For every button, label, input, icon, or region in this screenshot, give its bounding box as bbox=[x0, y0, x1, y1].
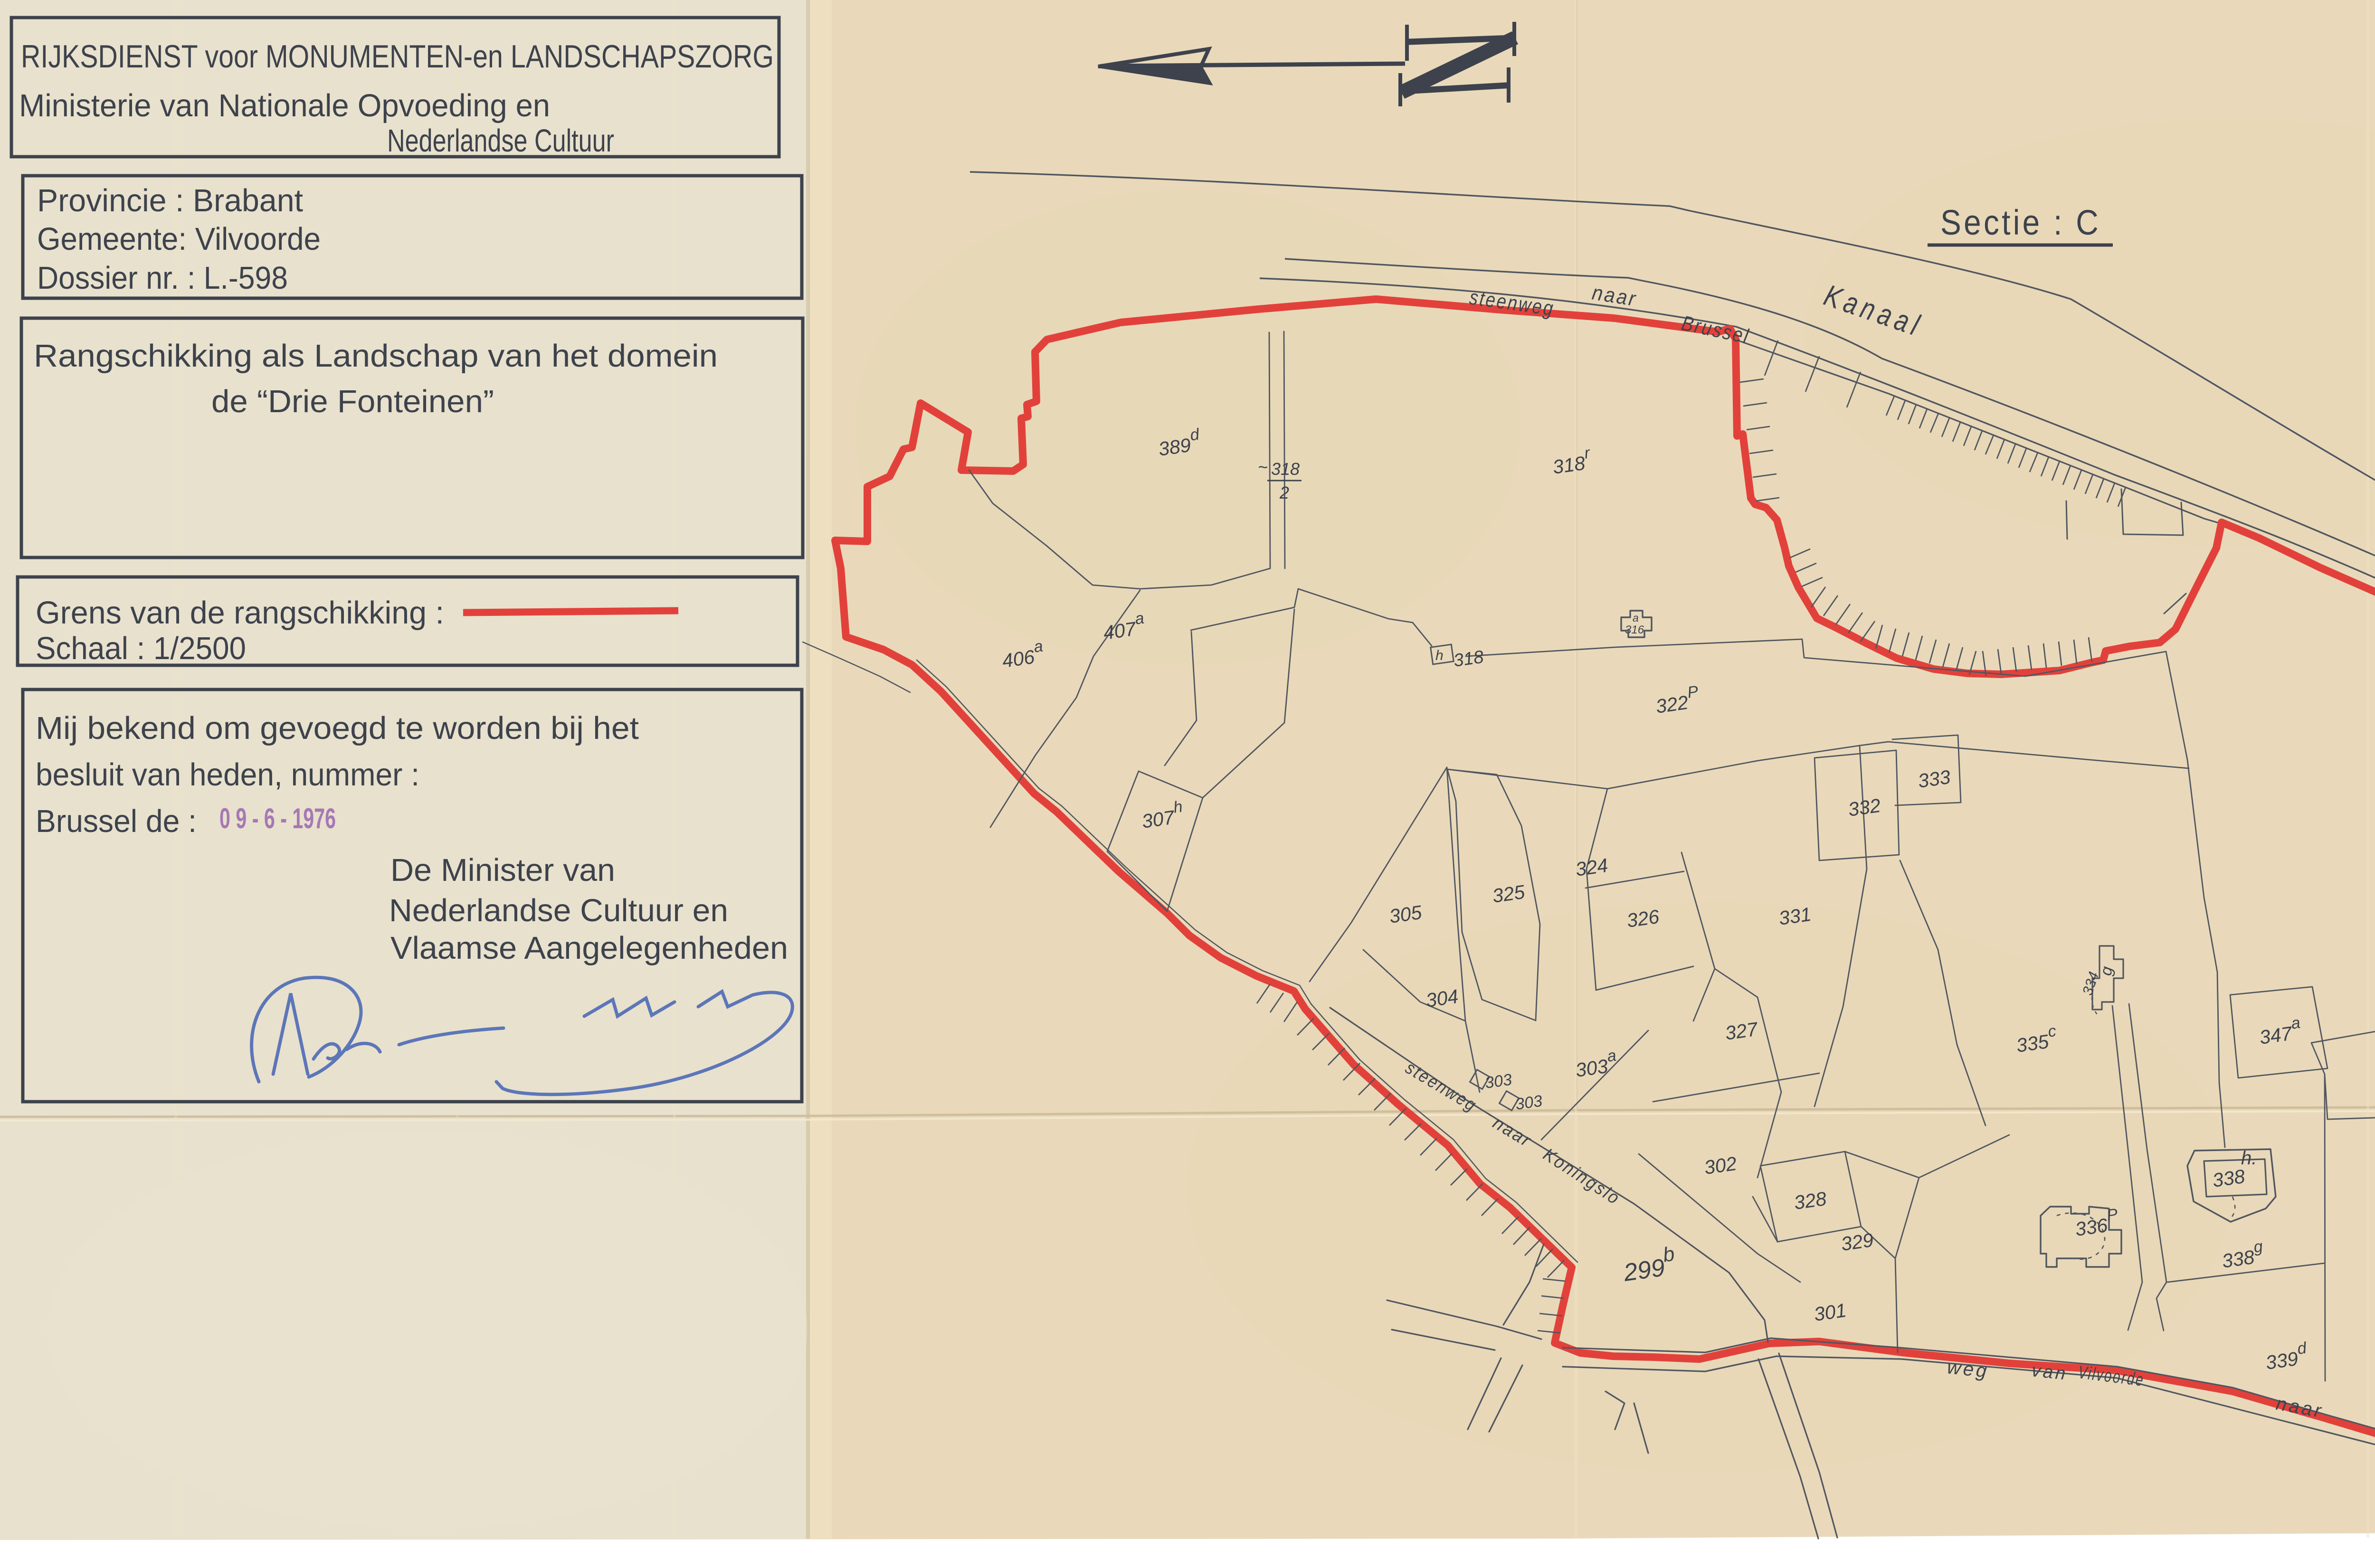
svg-text:Brussel de :: Brussel de : bbox=[36, 803, 197, 839]
svg-text:305: 305 bbox=[1388, 901, 1423, 927]
svg-text:328: 328 bbox=[1793, 1188, 1828, 1214]
svg-text:Sectie : C: Sectie : C bbox=[1940, 203, 2101, 242]
svg-text:339: 339 bbox=[2264, 1348, 2299, 1374]
svg-text:335: 335 bbox=[2015, 1030, 2050, 1057]
svg-text:318: 318 bbox=[1271, 459, 1300, 479]
svg-text:332: 332 bbox=[1847, 794, 1882, 821]
svg-text:318: 318 bbox=[1551, 452, 1586, 478]
svg-text:303: 303 bbox=[1484, 1070, 1513, 1092]
svg-text:301: 301 bbox=[1813, 1299, 1848, 1325]
svg-text:347: 347 bbox=[2258, 1022, 2294, 1048]
svg-text:van: van bbox=[2031, 1360, 2069, 1384]
svg-text:de “Drie Fonteinen”: de “Drie Fonteinen” bbox=[211, 384, 494, 419]
svg-text:Nederlandse Cultuur en: Nederlandse Cultuur en bbox=[389, 893, 728, 928]
svg-text:316: 316 bbox=[1625, 623, 1644, 636]
svg-text:329: 329 bbox=[1840, 1229, 1875, 1255]
svg-text:0 9 - 6 - 1976: 0 9 - 6 - 1976 bbox=[219, 803, 336, 834]
svg-text:322: 322 bbox=[1654, 691, 1690, 718]
svg-text:331: 331 bbox=[1777, 903, 1813, 929]
svg-text:303: 303 bbox=[1514, 1092, 1544, 1114]
svg-text:336: 336 bbox=[2074, 1214, 2109, 1240]
svg-text:304: 304 bbox=[1425, 985, 1460, 1011]
svg-text:Grens van de rangschikking :: Grens van de rangschikking : bbox=[36, 595, 444, 631]
svg-text:h.: h. bbox=[2241, 1148, 2257, 1169]
svg-text:a: a bbox=[1633, 612, 1639, 624]
svg-text:299: 299 bbox=[1622, 1254, 1667, 1287]
svg-text:327: 327 bbox=[1724, 1018, 1760, 1044]
svg-text:303: 303 bbox=[1574, 1055, 1609, 1081]
svg-text:333: 333 bbox=[1917, 766, 1952, 792]
svg-text:Vlaamse Aangelegenheden: Vlaamse Aangelegenheden bbox=[390, 930, 788, 966]
svg-text:RIJKSDIENST voor MONUMENTEN-en: RIJKSDIENST voor MONUMENTEN-en LANDSCHAP… bbox=[21, 38, 774, 75]
svg-text:Gemeente: Vilvoorde: Gemeente: Vilvoorde bbox=[37, 221, 321, 257]
svg-text:318: 318 bbox=[1452, 647, 1485, 671]
svg-text:besluit van heden, nummer :: besluit van heden, nummer : bbox=[36, 757, 419, 793]
svg-text:338: 338 bbox=[2221, 1246, 2256, 1272]
svg-text:De Minister van: De Minister van bbox=[390, 852, 615, 888]
svg-text:325: 325 bbox=[1491, 881, 1526, 907]
svg-text:h: h bbox=[1435, 648, 1444, 663]
svg-text:326: 326 bbox=[1625, 906, 1661, 932]
svg-text:Rangschikking als Landschap: Rangschikking als Landschap van het dome… bbox=[34, 338, 718, 374]
svg-text:Dossier nr. : L.-598: Dossier nr. : L.-598 bbox=[37, 260, 288, 296]
svg-text:406: 406 bbox=[1001, 646, 1036, 672]
svg-text:338: 338 bbox=[2211, 1165, 2246, 1191]
svg-text:Provincie : Brabant: Provincie : Brabant bbox=[37, 183, 303, 218]
svg-text:2: 2 bbox=[1279, 483, 1289, 502]
svg-text:Mij bekend om gevoegd te: Mij bekend om gevoegd te worden bij het bbox=[36, 710, 639, 746]
svg-text:Ministerie van Nationale Op: Ministerie van Nationale Opvoeding en bbox=[19, 88, 550, 123]
svg-text:307: 307 bbox=[1140, 806, 1177, 832]
svg-text:~: ~ bbox=[1258, 457, 1268, 477]
svg-text:389: 389 bbox=[1157, 434, 1192, 460]
svg-text:302: 302 bbox=[1703, 1152, 1738, 1179]
svg-text:407: 407 bbox=[1102, 618, 1138, 644]
svg-text:Schaal : 1/2500: Schaal : 1/2500 bbox=[36, 631, 246, 666]
svg-text:weg: weg bbox=[1946, 1357, 1990, 1382]
svg-text:Nederlandse Cultuur: Nederlandse Cultuur bbox=[387, 123, 614, 159]
svg-text:324: 324 bbox=[1574, 854, 1609, 880]
